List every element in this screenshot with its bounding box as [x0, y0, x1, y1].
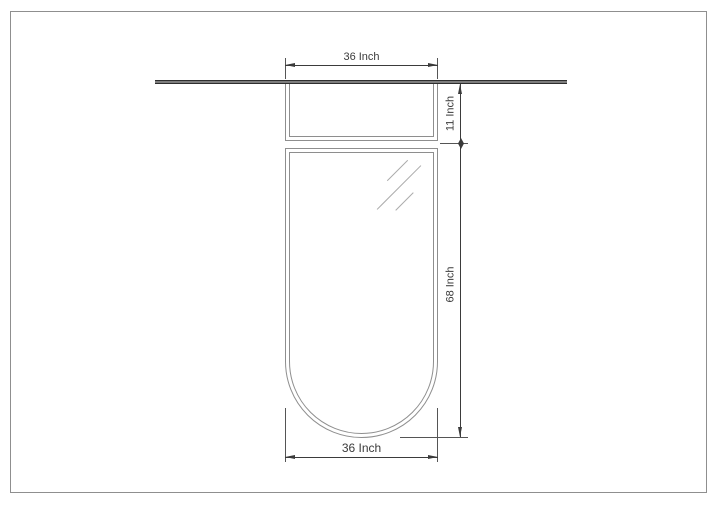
dim-top-line — [285, 65, 438, 66]
dim-label-top-width: 36 Inch — [285, 51, 438, 64]
dim-bottom-arrow-left-icon — [285, 455, 295, 459]
dim-right-ext-bottom — [400, 437, 468, 438]
dim-right-arrow-up-icon — [458, 84, 462, 94]
mirror-upper-frame-inner — [289, 84, 434, 137]
dim-label-overall-height: 68 Inch — [445, 255, 458, 315]
drawing-canvas: 36 Inch 11 Inch 68 Inch 36 Inch — [0, 0, 720, 509]
dim-right-line — [460, 84, 461, 437]
dim-bottom-arrow-right-icon — [428, 455, 438, 459]
dim-label-bottom-width: 36 Inch — [285, 441, 438, 455]
dim-right-arrow-down-icon — [458, 427, 462, 437]
dim-label-upper-height: 11 Inch — [445, 84, 458, 144]
dim-bottom-line — [285, 457, 438, 458]
